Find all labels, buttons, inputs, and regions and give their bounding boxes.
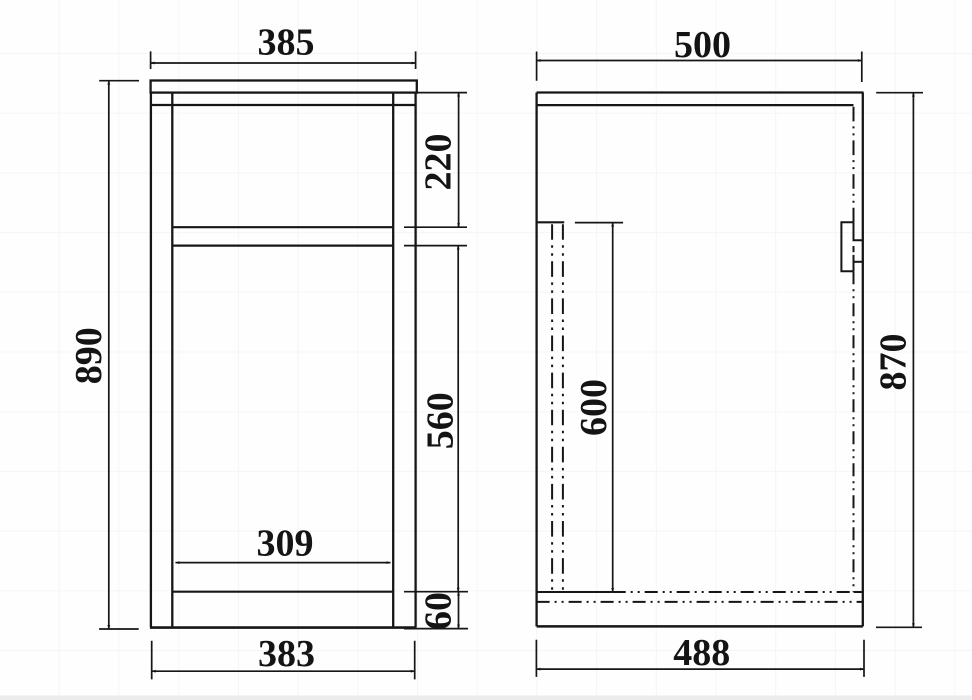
svg-text:60: 60 xyxy=(417,592,459,630)
svg-text:385: 385 xyxy=(258,22,315,64)
svg-text:870: 870 xyxy=(872,334,914,391)
svg-text:309: 309 xyxy=(257,523,314,565)
svg-text:488: 488 xyxy=(673,632,730,674)
svg-text:383: 383 xyxy=(258,633,315,675)
svg-text:890: 890 xyxy=(68,327,110,384)
svg-text:220: 220 xyxy=(417,134,459,191)
svg-text:500: 500 xyxy=(674,24,731,66)
svg-text:600: 600 xyxy=(573,379,615,436)
svg-text:560: 560 xyxy=(419,392,461,449)
